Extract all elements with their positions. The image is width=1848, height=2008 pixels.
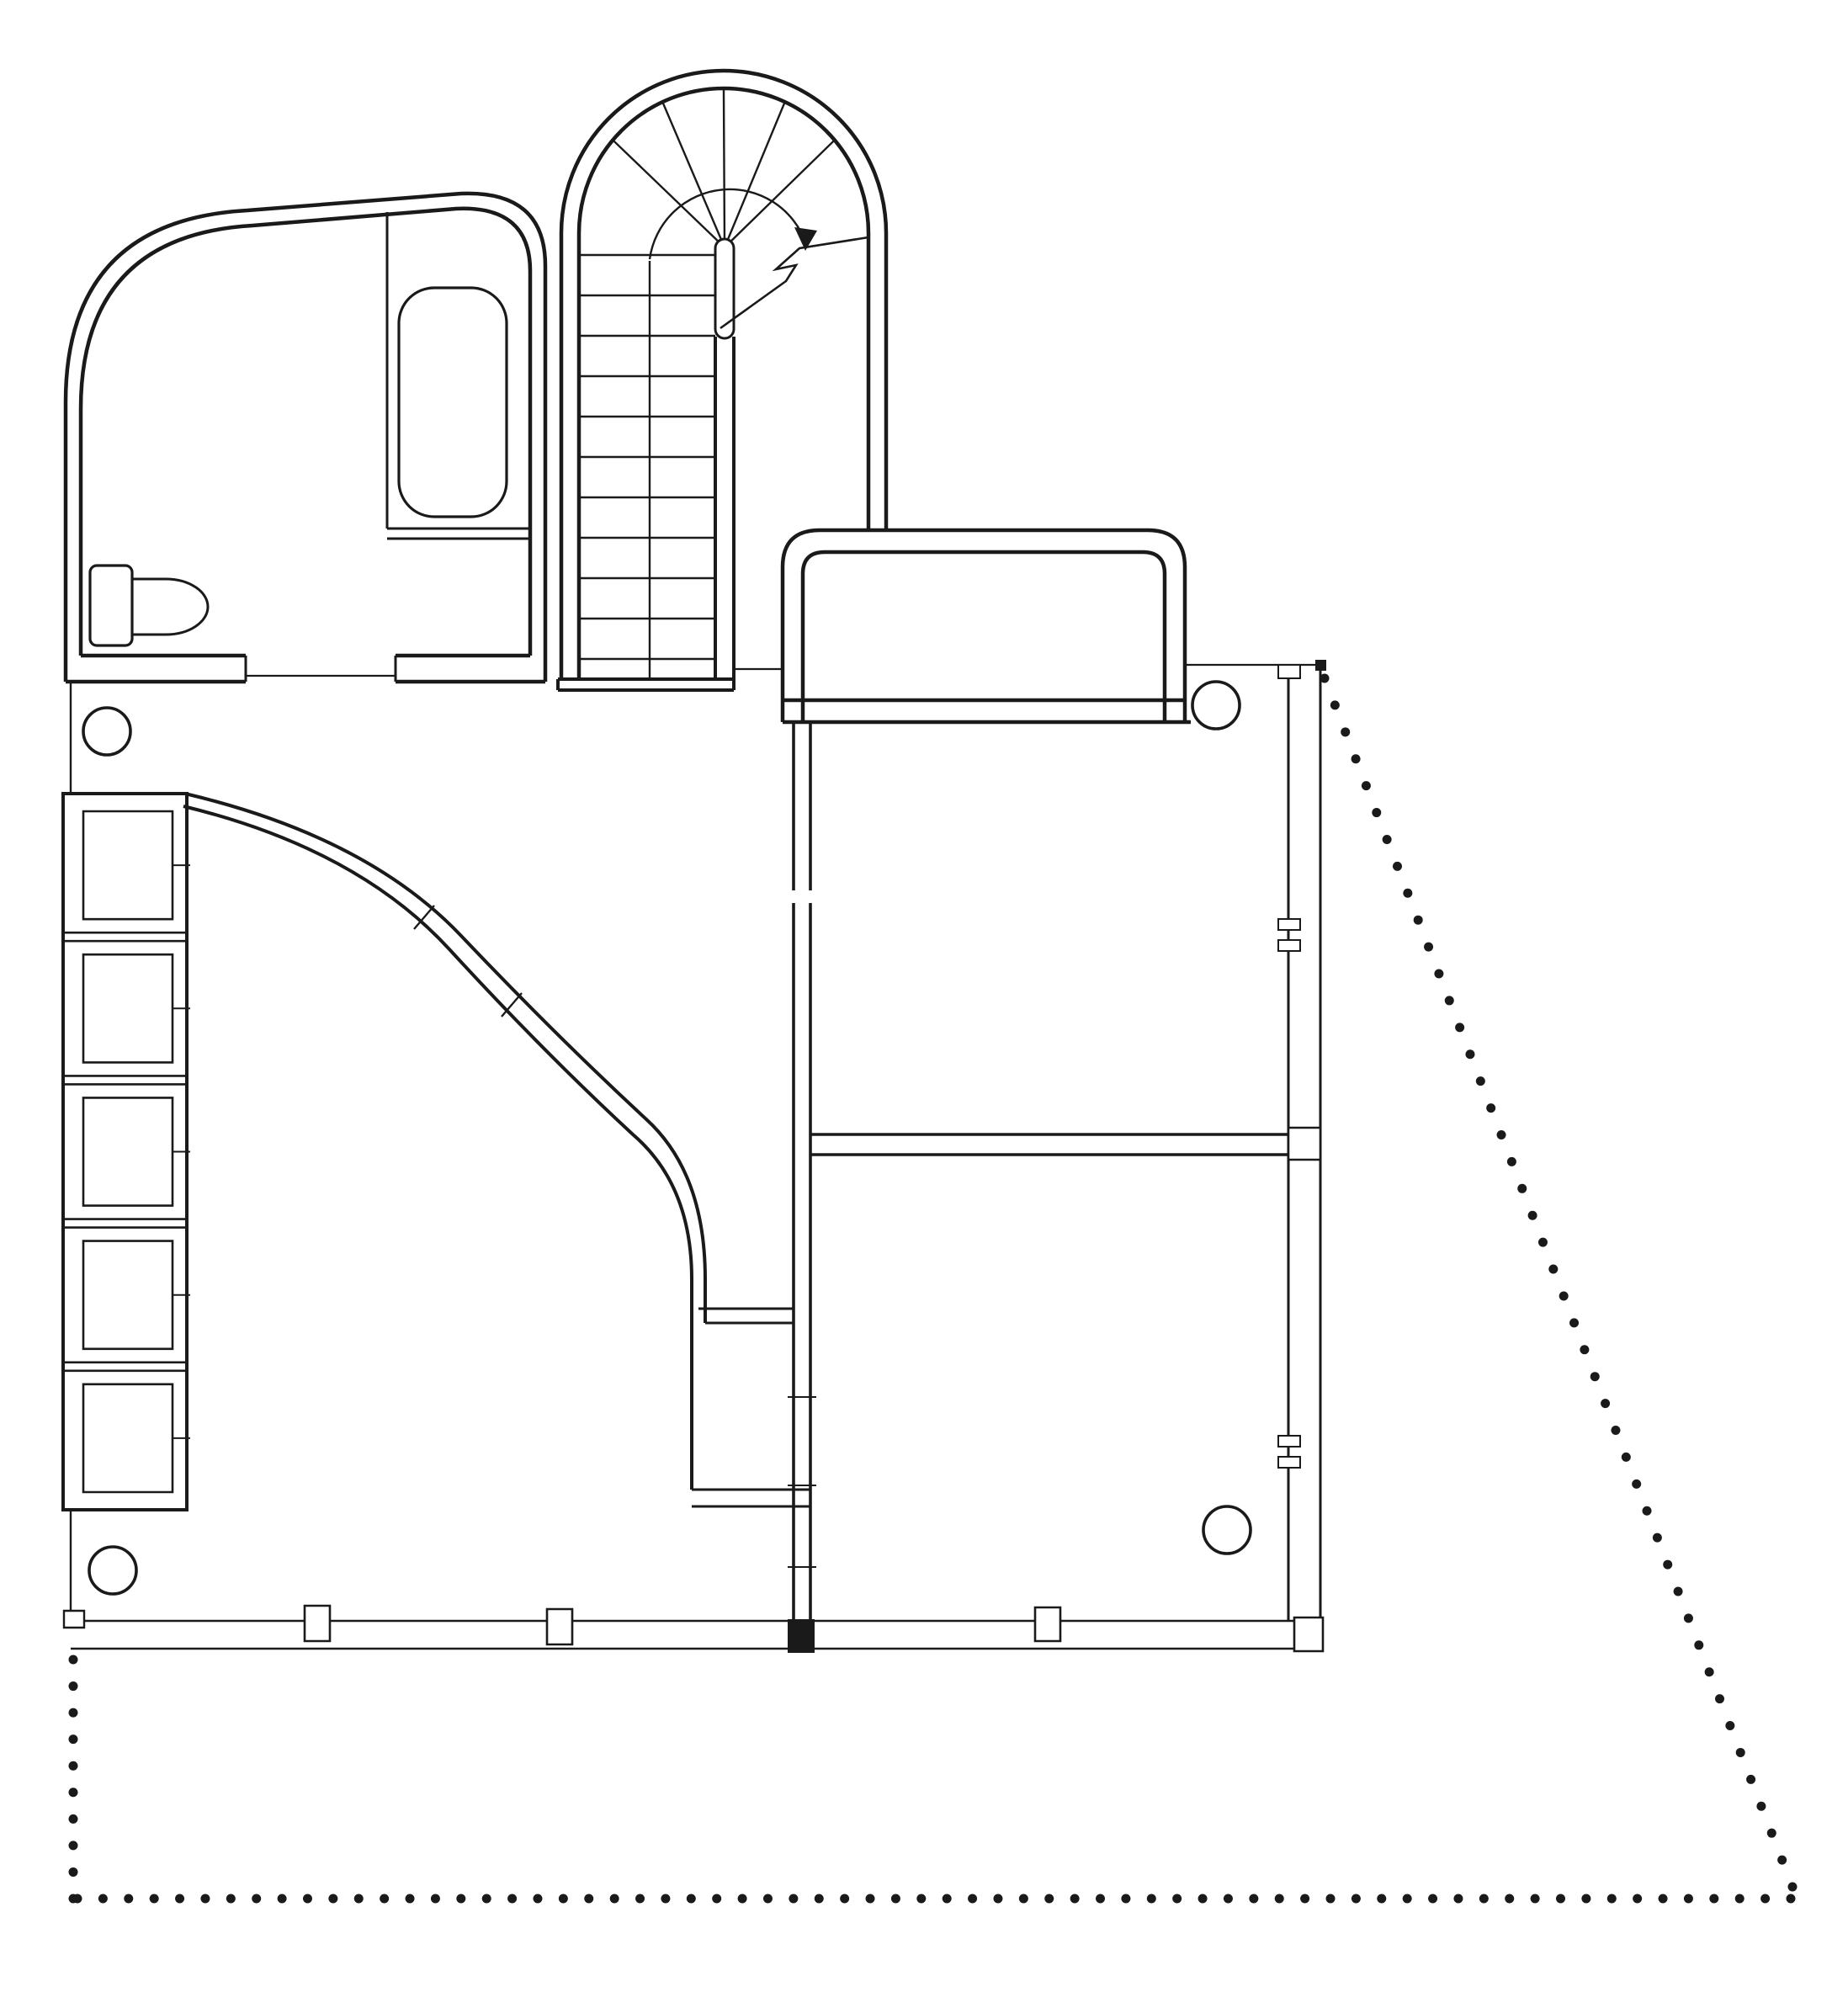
boundary-dot <box>1735 1894 1744 1904</box>
shelf-bay <box>83 811 173 919</box>
boundary-dot <box>1403 1894 1412 1904</box>
boundary-dot <box>1497 1130 1506 1139</box>
column <box>89 1547 136 1594</box>
boundary-dot <box>1476 1076 1485 1086</box>
boundary-dot <box>1528 1211 1537 1220</box>
stair-right-wall <box>868 233 886 532</box>
boundary-dot <box>1611 1426 1620 1435</box>
boundary-dot <box>1300 1894 1309 1904</box>
tub-alcove-partition <box>387 212 530 539</box>
boundary-dot <box>635 1894 645 1904</box>
window-mark <box>1278 919 1300 930</box>
boundary-dot <box>1428 1894 1437 1904</box>
boundary-dot <box>763 1894 773 1904</box>
boundary-dot <box>993 1894 1002 1904</box>
boundary-dot <box>1694 1640 1703 1649</box>
boundary-dot <box>507 1894 517 1904</box>
boundary-dot <box>789 1894 798 1904</box>
boundary-dot <box>1777 1856 1787 1865</box>
boundary-dot <box>226 1894 236 1904</box>
boundary-dot <box>1590 1372 1600 1381</box>
boundary-dot <box>1326 1894 1336 1904</box>
boundary-dot <box>1760 1894 1770 1904</box>
boundary-dot <box>1505 1894 1514 1904</box>
boundary-dot <box>1736 1748 1745 1757</box>
window-tick <box>1278 665 1300 678</box>
boundary-dot <box>1787 1894 1796 1904</box>
boundary-dot <box>69 1814 78 1824</box>
bathroom <box>66 194 545 682</box>
boundary-dot <box>1453 1894 1463 1904</box>
shelf-unit <box>63 794 190 1510</box>
curved-wall-joint-ticks <box>414 906 522 1017</box>
boundary-dot <box>1517 1184 1527 1193</box>
boundary-dot <box>482 1894 491 1904</box>
boundary-dot <box>1434 969 1443 979</box>
boundary-dot <box>124 1894 133 1904</box>
boundary-dot <box>1507 1157 1516 1166</box>
duct-closet-top-wall <box>698 1309 794 1323</box>
boundary-dot <box>1341 727 1350 736</box>
boundary-dot <box>1147 1894 1156 1904</box>
boundary-dot <box>1659 1894 1668 1904</box>
bedroom-divider-wall <box>810 1134 1288 1155</box>
boundary-dot <box>278 1894 287 1904</box>
column <box>1203 1506 1251 1554</box>
center-wall-joint-ticks <box>788 1397 816 1567</box>
boundary-dot <box>712 1894 721 1904</box>
boundary-dot <box>1044 1894 1054 1904</box>
boundary-dot <box>1019 1894 1028 1904</box>
divider-wall-end-box <box>1288 1128 1320 1160</box>
boundary-dot <box>1715 1694 1724 1703</box>
staircase <box>558 71 886 690</box>
boundary-dot <box>69 1655 78 1665</box>
boundary-dot <box>1622 1453 1631 1462</box>
toilet-bowl <box>132 579 208 635</box>
boundary-dot <box>891 1894 900 1904</box>
mullion-box <box>305 1606 330 1641</box>
wall-end-tick <box>64 1611 84 1628</box>
boundary-dot <box>1538 1238 1548 1247</box>
boundary-dot <box>1632 1479 1641 1489</box>
boundary-dot <box>69 1841 78 1850</box>
boundary-dot <box>1172 1894 1182 1904</box>
boundary-dot <box>1556 1894 1565 1904</box>
boundary-dot <box>1709 1894 1718 1904</box>
boundary-dot <box>1643 1506 1652 1516</box>
boundary-dot <box>1479 1894 1489 1904</box>
stair-run-right-wall <box>715 337 734 679</box>
curved-wall-outer-line <box>185 794 705 1323</box>
bathroom-outer-wall <box>66 194 545 682</box>
boundary-dot <box>1403 889 1412 898</box>
boundary-dot <box>1746 1775 1755 1784</box>
boundary-dot <box>303 1894 312 1904</box>
boundary-dot <box>98 1894 108 1904</box>
bay-outer-wall <box>783 530 1185 722</box>
boundary-dot <box>354 1894 364 1904</box>
boundary-dot <box>150 1894 159 1904</box>
stair-newel-post <box>715 239 734 338</box>
winder-radial <box>725 102 785 247</box>
boundary-dot <box>1070 1894 1080 1904</box>
boundary-dot <box>252 1894 261 1904</box>
boundary-dot <box>1559 1291 1569 1300</box>
toilet-tank <box>90 566 132 645</box>
boundary-dot <box>738 1894 747 1904</box>
boundary-dot <box>559 1894 568 1904</box>
corner-mullion-box <box>1294 1618 1323 1651</box>
boundary-dot <box>943 1894 952 1904</box>
boundary-dot <box>200 1894 210 1904</box>
boundary-dot <box>1414 916 1423 925</box>
mullion-box <box>1035 1607 1060 1641</box>
boundary-dot <box>1096 1894 1105 1904</box>
shelf-bay <box>83 1097 173 1205</box>
stair-treads <box>578 255 715 659</box>
window-mark <box>1278 1436 1300 1447</box>
boundary-dot <box>1455 1023 1464 1032</box>
boundary-dot <box>328 1894 337 1904</box>
bay-enclosure <box>783 530 1191 722</box>
boundary-dot <box>69 1734 78 1744</box>
boundary-dot <box>175 1894 184 1904</box>
boundary-dot <box>1684 1894 1693 1904</box>
bathroom-inner-wall <box>81 209 530 656</box>
boundary-dot <box>1320 674 1330 683</box>
boundary-dot <box>431 1894 440 1904</box>
boundary-dot <box>1788 1883 1798 1892</box>
boundary-dot <box>69 1788 78 1797</box>
boundary-dot <box>69 1708 78 1718</box>
bay-sill-wall <box>783 700 1191 722</box>
boundary-dot <box>1633 1894 1642 1904</box>
boundary-dot <box>1607 1894 1617 1904</box>
boundary-dot <box>380 1894 389 1904</box>
boundary-dot <box>1351 754 1361 763</box>
floor-edge-lines <box>734 660 1326 671</box>
bottom-wall-mullions <box>64 1606 1323 1651</box>
toilet <box>90 566 208 645</box>
boundary-dot <box>1372 808 1381 817</box>
boundary-dot <box>866 1894 875 1904</box>
boundary-dot <box>69 1894 78 1904</box>
boundary-dot <box>1330 700 1340 709</box>
boundary-dot <box>1198 1894 1208 1904</box>
boundary-dot <box>1601 1399 1610 1408</box>
scanned-floor-plan-page <box>0 0 1848 2008</box>
shelf-bay <box>83 1241 173 1349</box>
boundary-dot <box>1531 1894 1540 1904</box>
boundary-dot <box>1725 1721 1734 1730</box>
boundary-dot <box>69 1867 78 1877</box>
boundary-dot <box>815 1894 824 1904</box>
mullion-box <box>547 1609 572 1644</box>
bathtub <box>399 288 507 517</box>
boundary-dot <box>968 1894 977 1904</box>
boundary-dot <box>1362 781 1371 790</box>
boundary-dot <box>1445 996 1454 1005</box>
curved-wall-inner-line <box>183 806 692 1490</box>
boundary-dot <box>406 1894 415 1904</box>
column <box>83 708 130 755</box>
winder-radial <box>725 140 835 247</box>
boundary-dot <box>584 1894 593 1904</box>
boundary-dot <box>1548 1265 1558 1274</box>
boundary-dot <box>1684 1613 1693 1623</box>
boundary-dot <box>69 1761 78 1771</box>
boundary-dot <box>1351 1894 1361 1904</box>
column <box>1192 682 1240 729</box>
boundary-dot <box>533 1894 542 1904</box>
curved-partition-wall <box>183 794 705 1490</box>
boundary-dot <box>1653 1533 1662 1543</box>
winder-radial <box>724 88 725 247</box>
stair-break-line <box>720 237 868 328</box>
interior-walls <box>692 722 1320 1653</box>
boundary-dot <box>1383 835 1392 844</box>
winder-radial <box>662 102 725 247</box>
boundary-dot <box>687 1894 696 1904</box>
boundary-dot <box>1580 1345 1589 1354</box>
boundary-dot <box>916 1894 926 1904</box>
boundary-dot <box>1486 1103 1495 1113</box>
shelf-bay <box>83 954 173 1062</box>
boundary-dot <box>1393 862 1402 871</box>
boundary-dot <box>1674 1586 1683 1596</box>
boundary-dot <box>1581 1894 1590 1904</box>
floor-plan <box>0 0 1848 2008</box>
stair-bottom-wall <box>558 679 734 690</box>
stair-left-wall <box>561 233 579 679</box>
boundary-dot <box>1121 1894 1130 1904</box>
boundary-dot <box>1663 1560 1672 1570</box>
bay-inner-wall <box>803 552 1165 722</box>
boundary-dot <box>1767 1829 1776 1838</box>
boundary-dot <box>1424 943 1433 952</box>
boundary-dot <box>1756 1802 1766 1811</box>
boundary-dot <box>1275 1894 1284 1904</box>
boundary-dot <box>69 1681 78 1691</box>
columns <box>83 682 1251 1594</box>
bathroom-bottom-wall <box>66 656 545 682</box>
shelf-bay <box>83 1384 173 1492</box>
shelf-outer-box <box>63 794 187 1510</box>
boundary-dot <box>1377 1894 1386 1904</box>
boundary-dot <box>1249 1894 1258 1904</box>
boundary-dot <box>456 1894 465 1904</box>
boundary-dot <box>840 1894 849 1904</box>
boundary-dot <box>610 1894 619 1904</box>
window-mark <box>1278 1457 1300 1468</box>
boundary-dot <box>1705 1667 1714 1676</box>
boundary-dot <box>1465 1049 1474 1059</box>
winder-radial <box>613 140 725 247</box>
window-mark <box>1278 940 1300 951</box>
bottom-window-wall <box>64 1606 1323 1651</box>
boundary-dot <box>1224 1894 1233 1904</box>
bathroom-door-jambs <box>246 656 396 682</box>
boundary-dot <box>1569 1318 1579 1327</box>
boundary-dot <box>661 1894 670 1904</box>
